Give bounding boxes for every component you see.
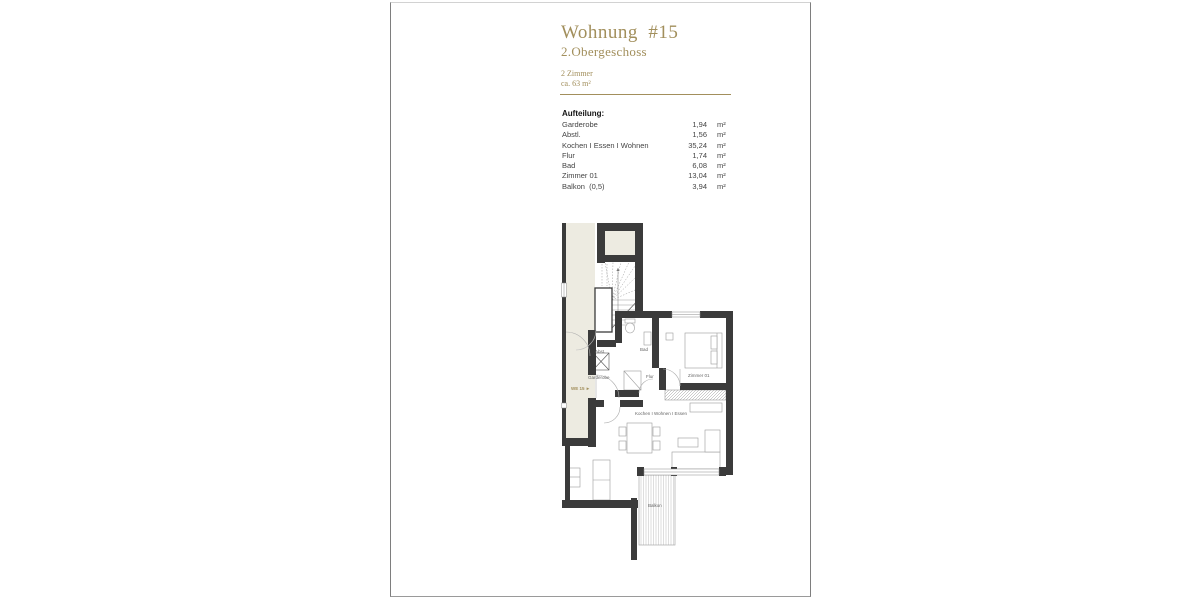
wardrobe [593,460,610,500]
document-canvas: Wohnung #15 2.Obergeschoss 2 Zimmer ca. … [0,0,1200,600]
room-area-unit: m² [717,151,726,160]
room-area-unit: m² [717,130,726,139]
balcony [639,475,675,545]
balkon-room-label: Balkon [648,503,662,508]
table-row: Garderobe 1,94 m² [562,120,728,130]
kitchen-counter [665,390,726,400]
room-label: Zimmer 01 [562,171,598,180]
room-label: Abstl. [562,130,581,139]
total-area: ca. 63 m² [561,79,591,88]
room-area-unit: m² [717,171,726,180]
aufteilung-heading: Aufteilung: [562,109,604,118]
table-row: Bad 6,08 m² [562,161,728,171]
sink [644,332,651,345]
aufteilung-list: Garderobe 1,94 m² Abstl. 1,56 m² Kochen … [562,120,728,192]
table-row: Flur 1,74 m² [562,151,728,161]
room-area-value: 3,94 [662,182,707,191]
room-area-unit: m² [717,120,726,129]
page-subtitle: 2.Obergeschoss [561,44,647,60]
dining-table [619,423,660,453]
room-area-value: 1,94 [662,120,707,129]
room-area-value: 1,56 [662,130,707,139]
bad-room-label: Bad [640,347,648,352]
table-row: Balkon (0,5) 3,94 m² [562,182,728,192]
room-area-value: 1,74 [662,151,707,160]
toilet [625,319,635,333]
room-area-unit: m² [717,161,726,170]
table-row: Abstl. 1,56 m² [562,130,728,140]
page-title: Wohnung #15 [561,22,678,44]
unit-number-label: WE 15 ► [571,386,590,391]
room-label: Bad [562,161,575,170]
shower [624,371,641,390]
zimmer-room-label: Zimmer 01 [688,373,710,378]
sofa [672,430,720,469]
rooms-count: 2 Zimmer [561,69,593,78]
room-label: Flur [562,151,575,160]
room-area-value: 6,08 [662,161,707,170]
elevator-shaft [595,288,612,332]
coffee-table [678,438,698,447]
room-area-value: 35,24 [662,141,707,150]
room-area-value: 13,04 [662,171,707,180]
garderobe-room-label: Garderobe [588,375,610,380]
table-row: Zimmer 01 13,04 m² [562,171,728,181]
kitchen-island [690,403,722,412]
room-area-unit: m² [717,182,726,191]
room-label: Balkon (0,5) [562,182,605,191]
room-label: Garderobe [562,120,598,129]
abst-room-label: Abst. [595,349,605,354]
header-divider [560,94,731,95]
floor-plan [560,220,740,565]
flur-room-label: Flur [646,374,654,379]
bed [666,333,722,368]
living-room-label: Kochen I Wohnen I Essen [635,411,687,416]
table-row: Kochen I Essen I Wohnen 35,24 m² [562,141,728,151]
room-area-unit: m² [717,141,726,150]
room-label: Kochen I Essen I Wohnen [562,141,649,150]
